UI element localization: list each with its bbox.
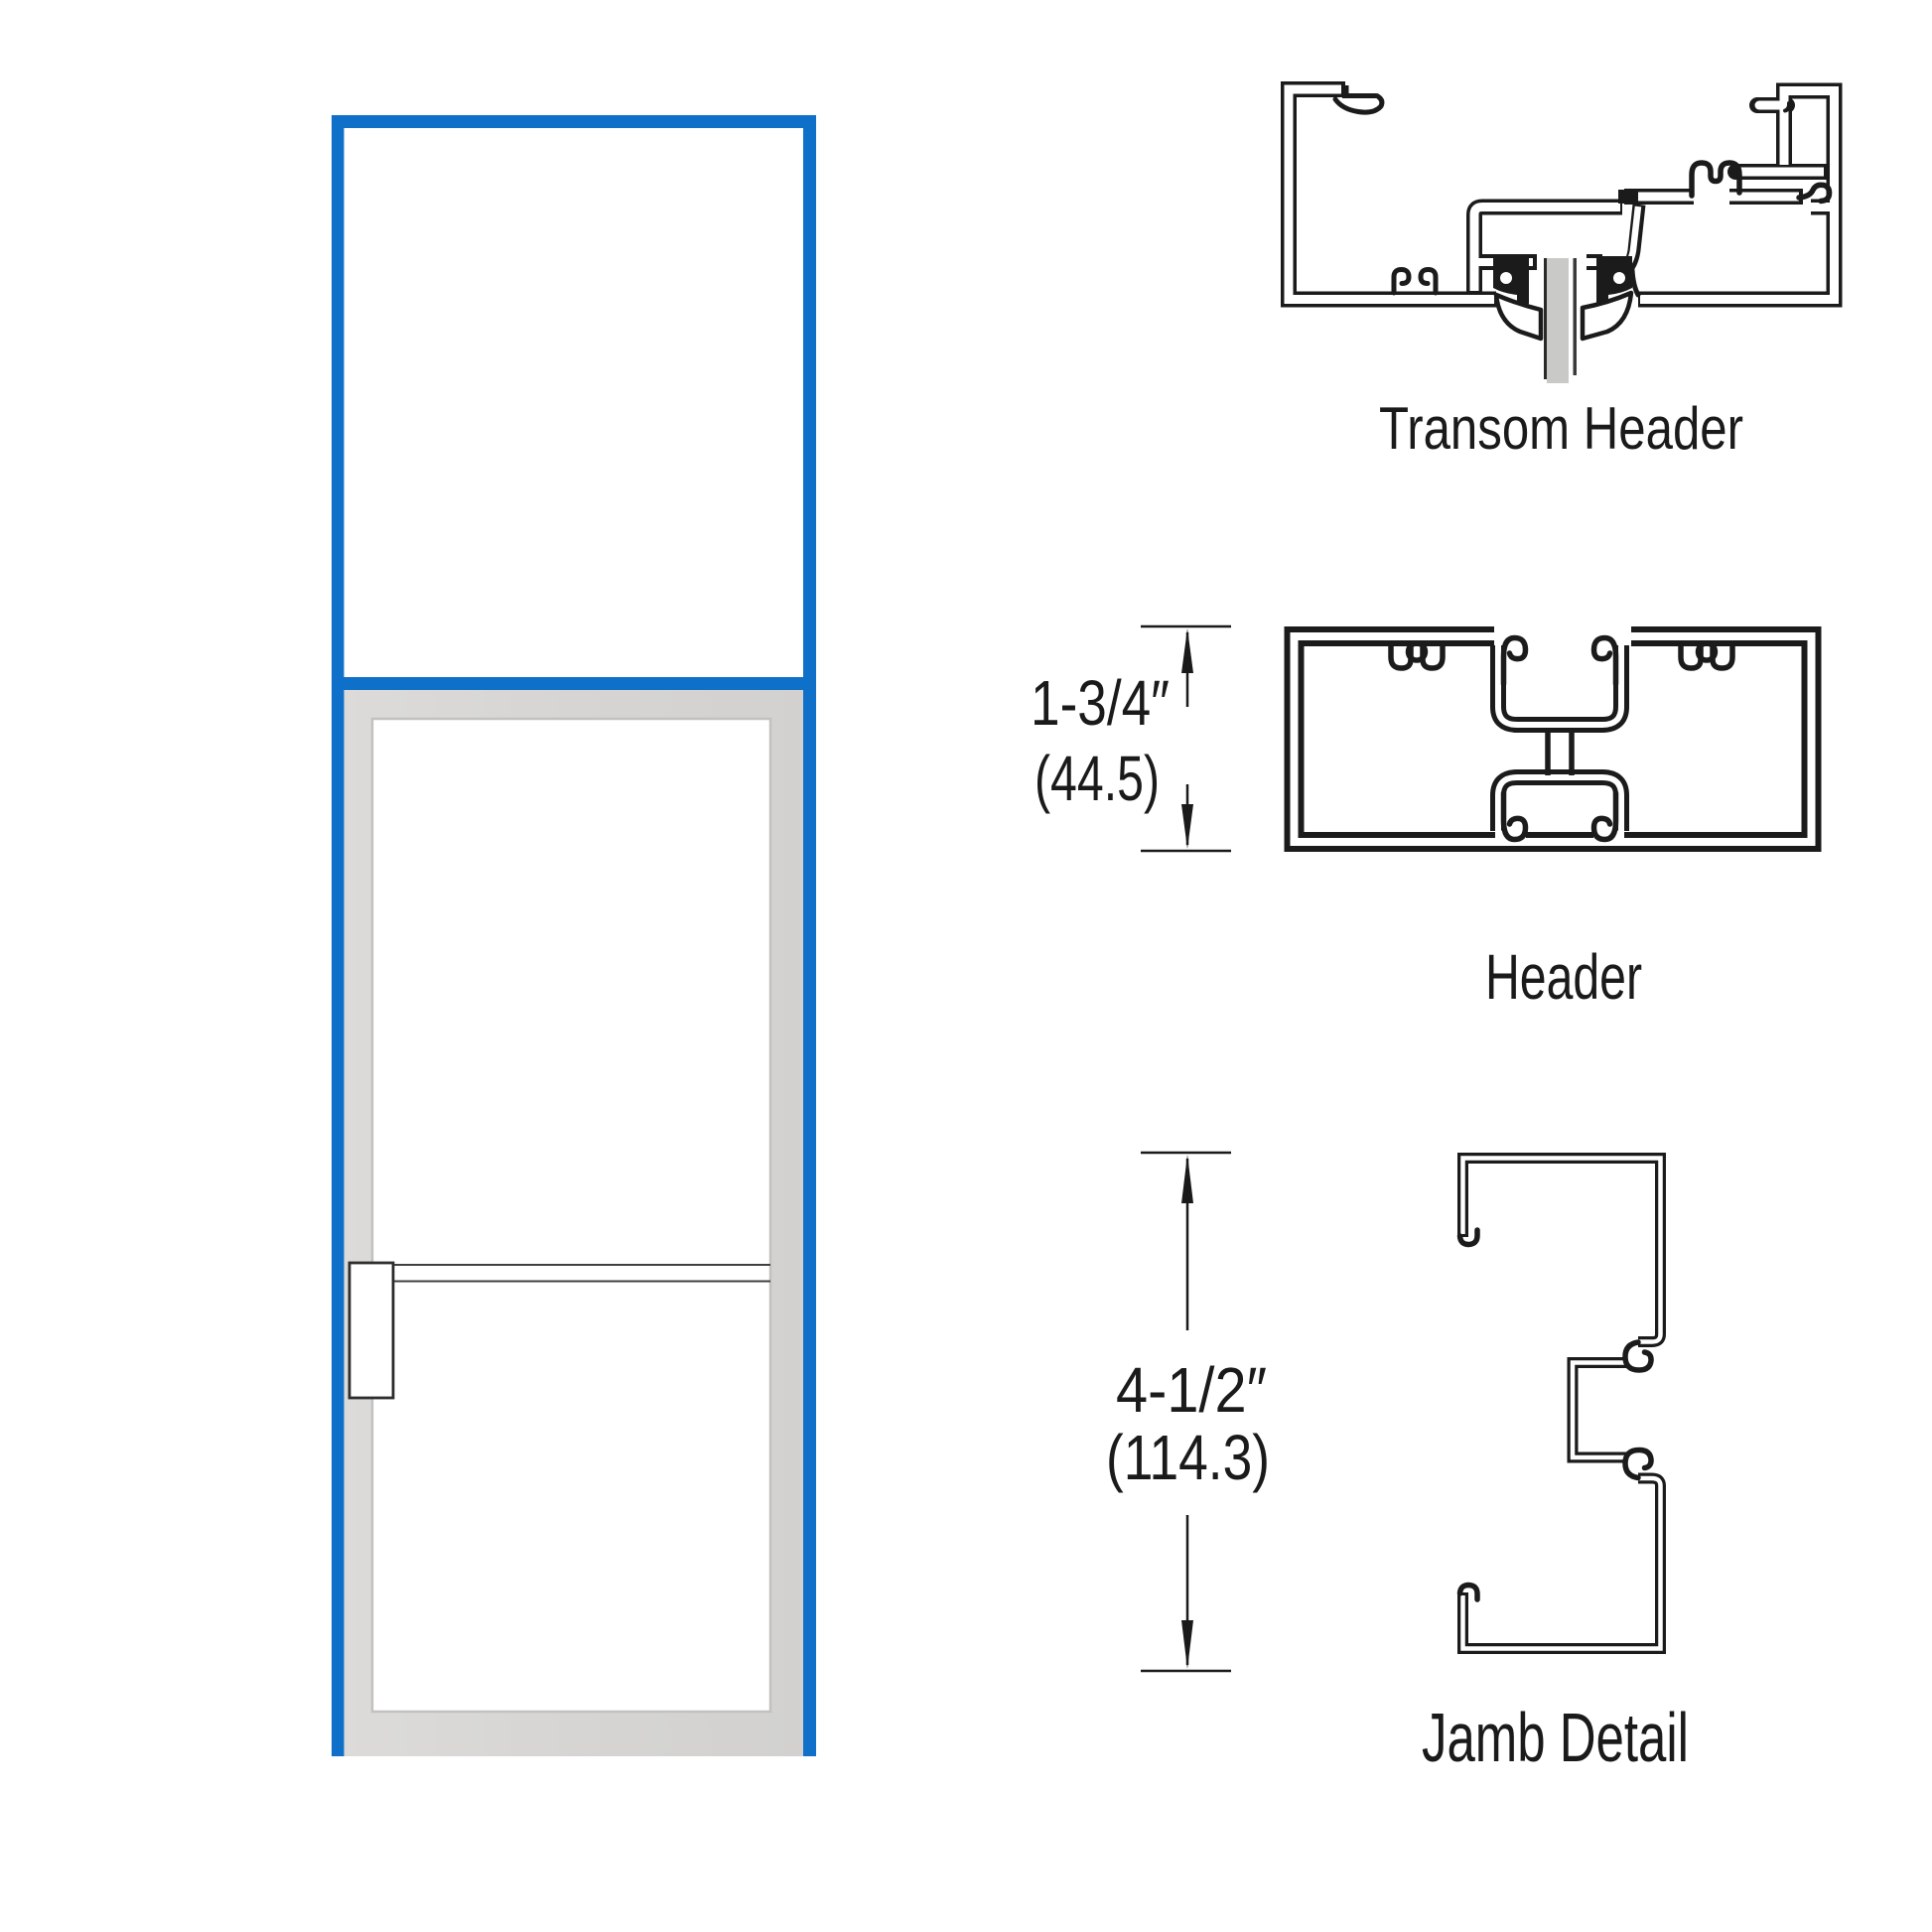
svg-text:(44.5): (44.5) [1035,743,1160,814]
svg-text:Transom Header: Transom Header [1379,395,1743,462]
svg-text:1-3/4″: 1-3/4″ [1031,667,1170,739]
svg-text:Header: Header [1485,941,1642,1013]
svg-text:(114.3): (114.3) [1106,1422,1270,1493]
svg-text:4-1/2″: 4-1/2″ [1116,1354,1267,1426]
svg-text:Jamb Detail: Jamb Detail [1422,1699,1689,1776]
